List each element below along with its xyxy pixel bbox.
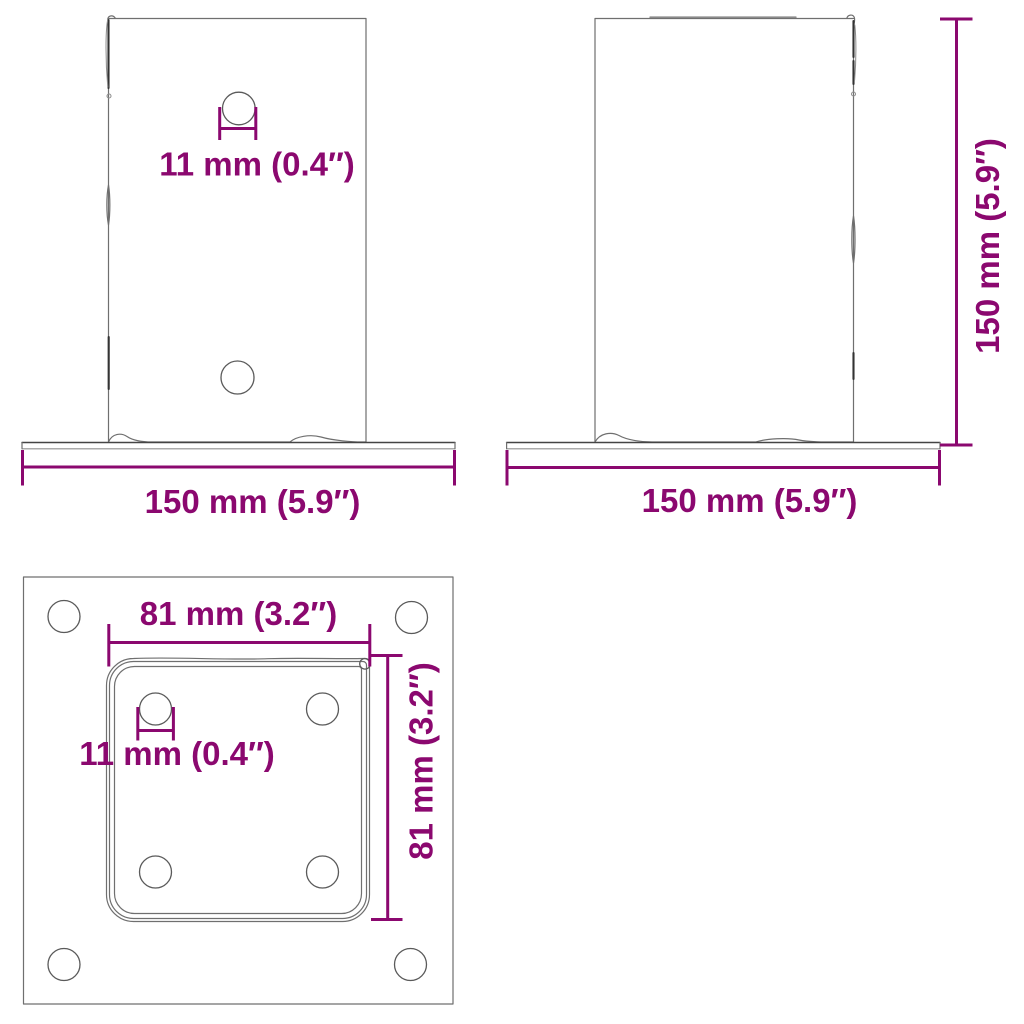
svg-text:150 mm (5.9″): 150 mm (5.9″) <box>969 138 1006 354</box>
svg-text:81 mm (3.2″): 81 mm (3.2″) <box>140 595 337 632</box>
svg-text:81 mm (3.2″): 81 mm (3.2″) <box>402 662 439 859</box>
svg-text:150 mm (5.9″): 150 mm (5.9″) <box>642 482 858 519</box>
svg-text:11 mm (0.4″): 11 mm (0.4″) <box>159 146 355 183</box>
svg-text:150 mm (5.9″): 150 mm (5.9″) <box>145 483 361 520</box>
svg-text:11 mm (0.4″): 11 mm (0.4″) <box>79 735 275 772</box>
